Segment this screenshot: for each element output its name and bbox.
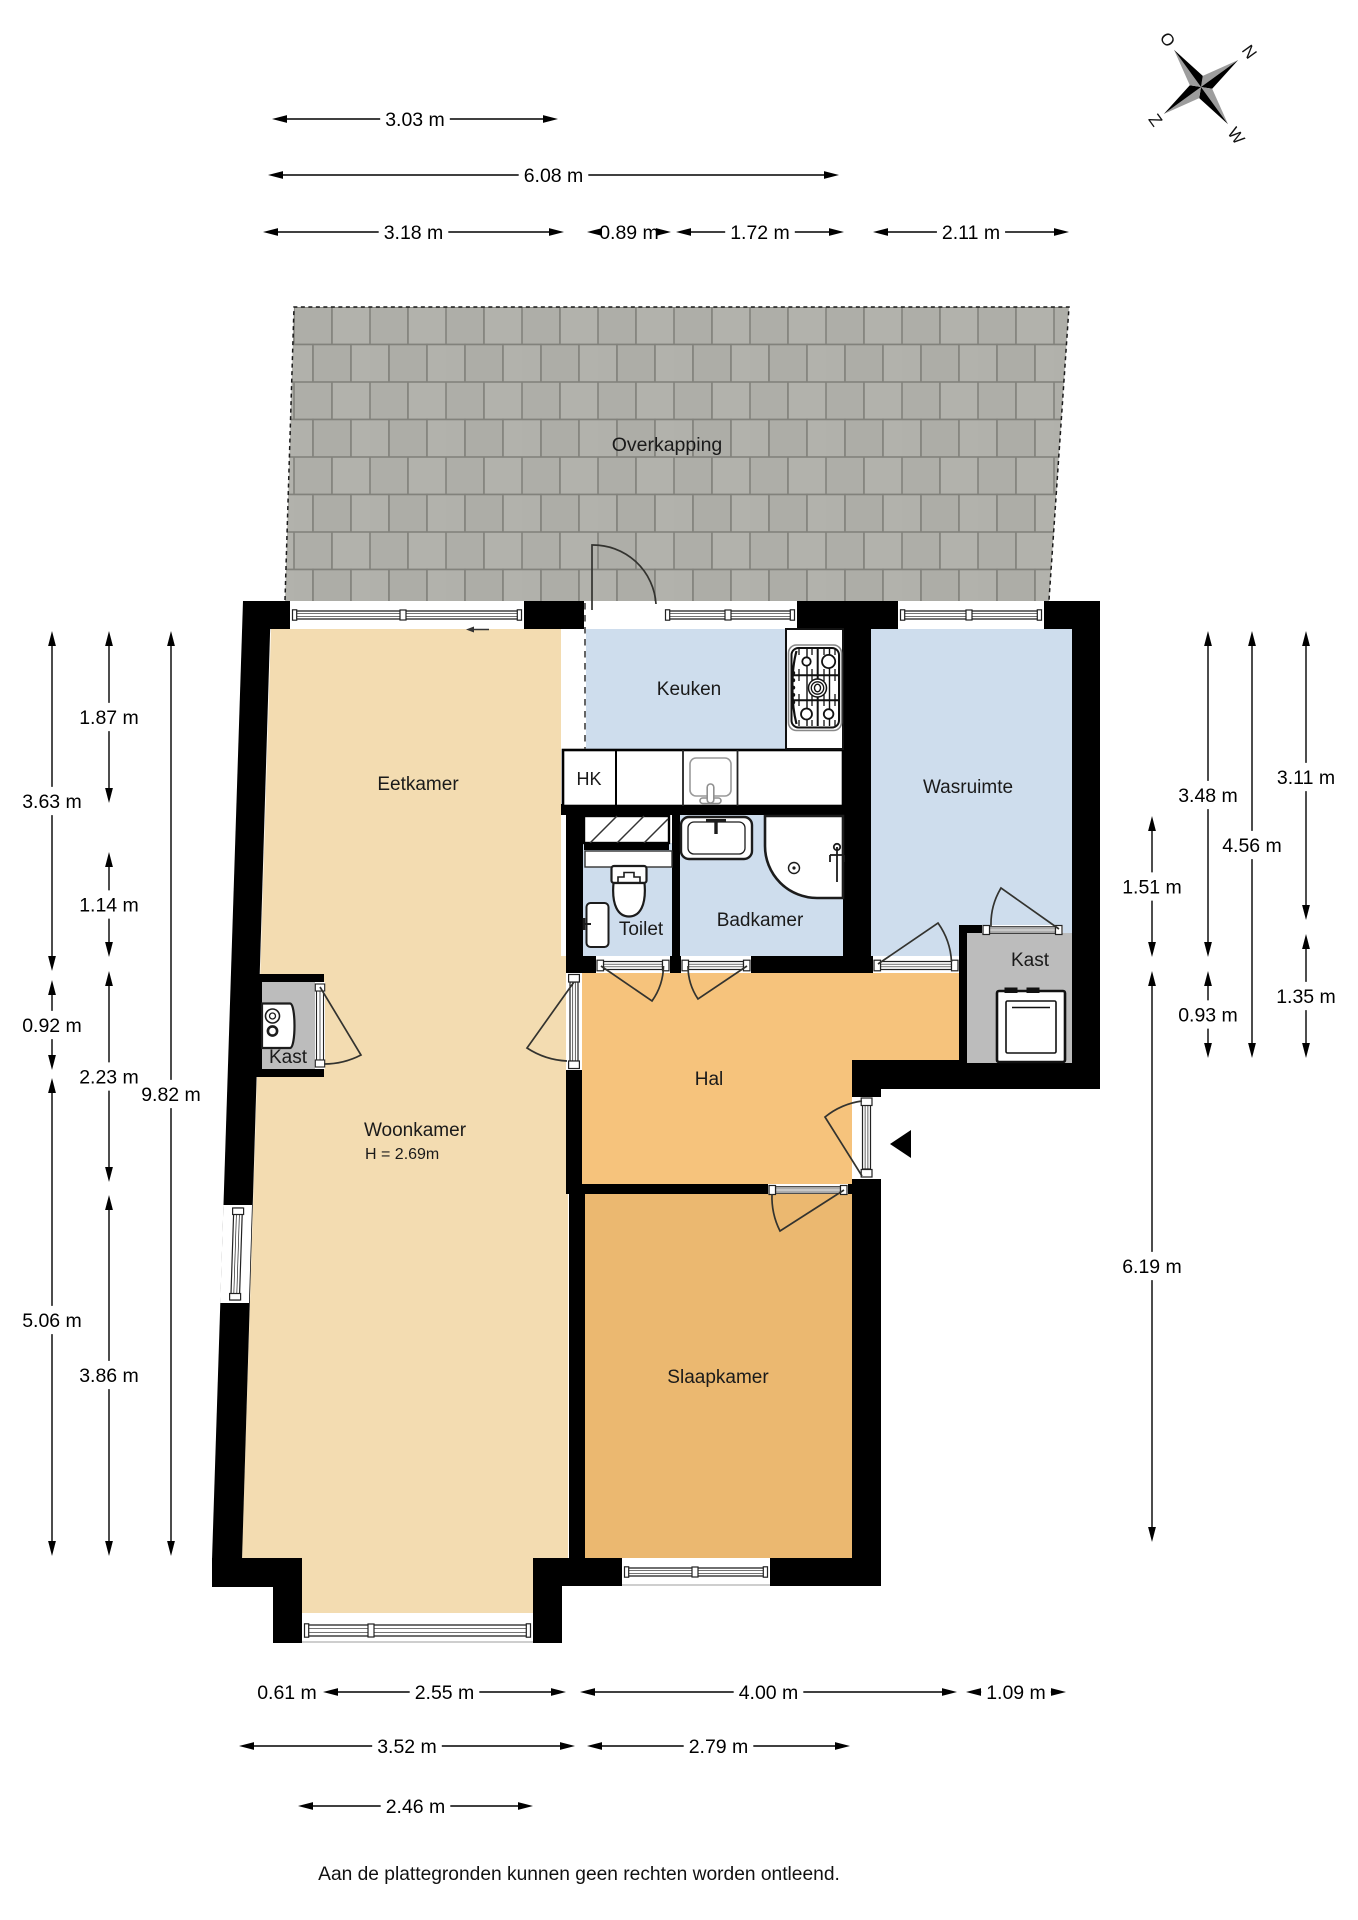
svg-text:0.92 m: 0.92 m	[22, 1015, 82, 1037]
svg-text:Keuken: Keuken	[657, 679, 721, 700]
svg-text:2.23 m: 2.23 m	[79, 1066, 139, 1088]
svg-text:1.35 m: 1.35 m	[1276, 986, 1336, 1008]
svg-text:H = 2.69m: H = 2.69m	[365, 1146, 439, 1163]
svg-text:1.87 m: 1.87 m	[79, 707, 139, 729]
svg-text:Woonkamer: Woonkamer	[364, 1120, 467, 1141]
svg-text:Toilet: Toilet	[619, 919, 664, 940]
svg-text:1.51 m: 1.51 m	[1122, 876, 1182, 898]
svg-text:Overkapping: Overkapping	[612, 434, 723, 456]
svg-text:2.46 m: 2.46 m	[386, 1796, 446, 1818]
svg-text:0.61 m: 0.61 m	[257, 1682, 317, 1704]
svg-text:2.11 m: 2.11 m	[942, 222, 1000, 244]
svg-text:3.63 m: 3.63 m	[22, 791, 82, 813]
svg-text:4.00 m: 4.00 m	[739, 1682, 799, 1704]
svg-text:0.89 m: 0.89 m	[599, 222, 659, 244]
svg-text:2.55 m: 2.55 m	[415, 1682, 475, 1704]
svg-text:Hal: Hal	[695, 1069, 724, 1090]
svg-text:Aan de plattegronden kunnen ge: Aan de plattegronden kunnen geen rechten…	[318, 1864, 840, 1885]
svg-text:Kast: Kast	[1011, 950, 1050, 971]
svg-text:Wasruimte: Wasruimte	[923, 777, 1013, 798]
svg-text:3.48 m: 3.48 m	[1178, 785, 1238, 807]
svg-text:1.09 m: 1.09 m	[986, 1682, 1046, 1704]
svg-text:Eetkamer: Eetkamer	[377, 774, 459, 795]
svg-text:9.82 m: 9.82 m	[141, 1084, 201, 1106]
svg-text:1.72 m: 1.72 m	[730, 222, 790, 244]
svg-text:3.11 m: 3.11 m	[1277, 767, 1335, 789]
svg-text:3.03 m: 3.03 m	[385, 109, 445, 131]
svg-text:3.52 m: 3.52 m	[377, 1736, 437, 1758]
svg-text:6.19 m: 6.19 m	[1122, 1256, 1182, 1278]
svg-text:Badkamer: Badkamer	[717, 910, 804, 931]
svg-text:4.56 m: 4.56 m	[1222, 835, 1282, 857]
svg-text:Kast: Kast	[269, 1047, 308, 1068]
svg-text:1.14 m: 1.14 m	[79, 894, 139, 916]
svg-text:Slaapkamer: Slaapkamer	[667, 1367, 769, 1388]
svg-text:5.06 m: 5.06 m	[22, 1310, 82, 1332]
svg-text:2.79 m: 2.79 m	[689, 1736, 749, 1758]
svg-text:3.18 m: 3.18 m	[384, 222, 444, 244]
svg-text:6.08 m: 6.08 m	[524, 165, 584, 187]
svg-text:0.93 m: 0.93 m	[1178, 1004, 1238, 1026]
svg-text:3.86 m: 3.86 m	[79, 1365, 139, 1387]
svg-text:HK: HK	[576, 769, 601, 789]
